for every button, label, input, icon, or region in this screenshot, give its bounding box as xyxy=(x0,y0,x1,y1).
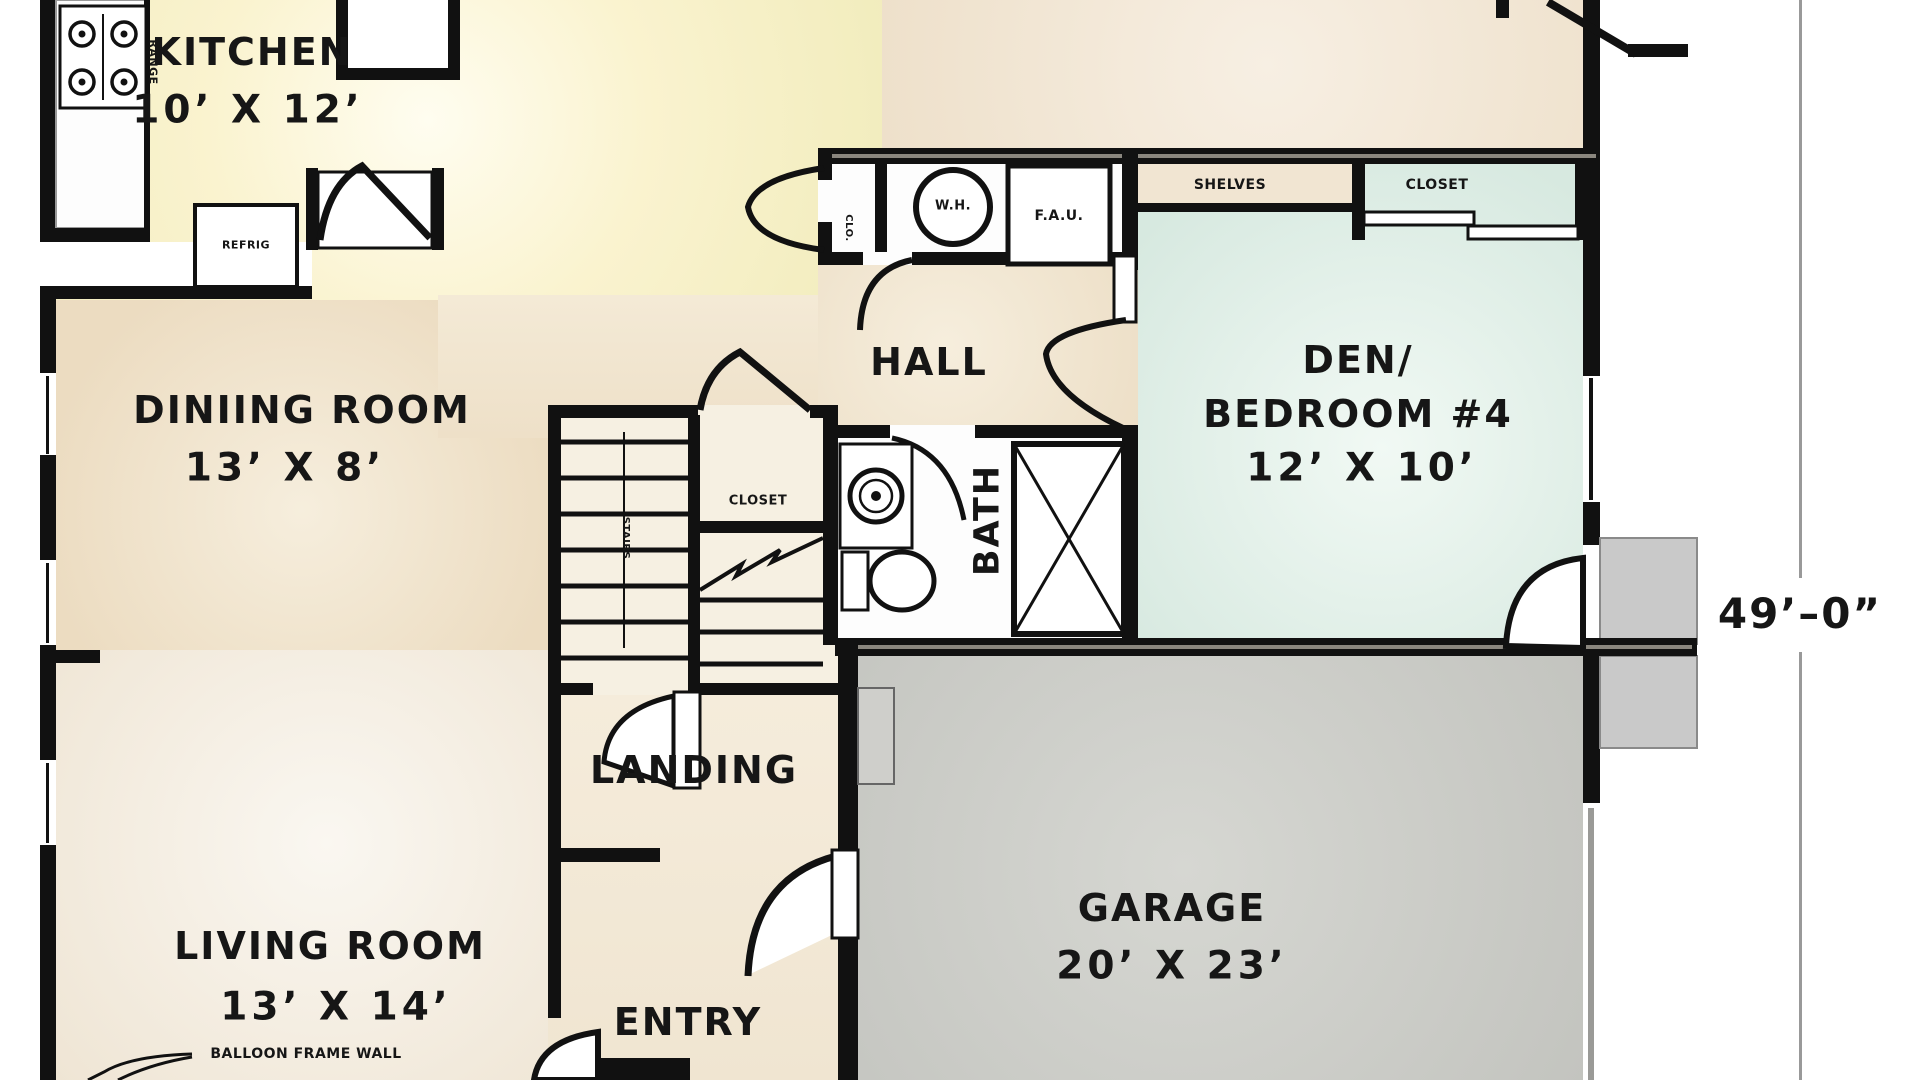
bath-walls xyxy=(823,425,1138,438)
den-closet-label: CLOSET xyxy=(1406,178,1469,192)
refrig-label: REFRIG xyxy=(222,240,270,251)
dimension-line xyxy=(1799,0,1802,1080)
clo-label: CLO. xyxy=(843,214,853,241)
hall-closet-door-swing xyxy=(700,352,810,410)
stairs-label: STAIRS xyxy=(620,517,630,560)
living-name: LIVING ROOM xyxy=(174,927,486,965)
range-label: RANGE xyxy=(148,39,159,84)
plan-linework xyxy=(0,0,1920,1080)
garage-side-door-wedge xyxy=(1506,558,1583,648)
balloon-note-leader xyxy=(88,1054,192,1080)
living-dims: 13’ X 14’ xyxy=(220,988,451,1027)
entry-label: ENTRY xyxy=(614,1003,762,1041)
wh-label: W.H. xyxy=(935,200,971,213)
garage-right-wall-lower xyxy=(1583,795,1600,1080)
hall-utility-door-swing xyxy=(860,260,912,330)
shelves-label: SHELVES xyxy=(1194,178,1266,192)
den-window xyxy=(1583,370,1600,508)
bath-sink xyxy=(850,470,902,522)
closet-bypass-door-1 xyxy=(1364,212,1474,225)
balloon-note: BALLOON FRAME WALL xyxy=(210,1047,401,1061)
stair-break-line xyxy=(700,538,823,590)
garage-name: GARAGE xyxy=(1078,889,1266,927)
garage-dims: 20’ X 23’ xyxy=(1056,947,1287,986)
den-dims: 12’ X 10’ xyxy=(1246,449,1477,488)
left-exterior-wall xyxy=(40,0,56,1080)
shower xyxy=(1014,444,1124,634)
den-door-swing xyxy=(1046,320,1126,428)
floor-plan: KITCHEN 10’ X 12’ RANGE REFRIG DINIING R… xyxy=(0,0,1920,1080)
utility-door-swing xyxy=(748,168,824,250)
toilet xyxy=(842,552,934,610)
left-wall-windows xyxy=(40,368,56,850)
closet-bypass-door-2 xyxy=(1468,226,1578,239)
bath-label: BATH xyxy=(971,464,1006,576)
landing-label: LANDING xyxy=(590,751,798,789)
den-name-2: BEDROOM #4 xyxy=(1203,395,1513,433)
shelves-line xyxy=(1138,203,1352,212)
den-name-1: DEN/ xyxy=(1302,341,1413,379)
dining-dims: 13’ X 8’ xyxy=(185,449,385,488)
stair-treads-lower xyxy=(700,600,823,664)
hall-closet-label: CLOSET xyxy=(729,495,788,508)
kitchen-dims: 10’ X 12’ xyxy=(132,91,363,130)
entry-garage-door-leaf xyxy=(832,850,858,938)
overall-dimension: 49’–0” xyxy=(1714,593,1886,635)
front-door-wedge xyxy=(534,1032,598,1080)
kitchen-name: KITCHEN xyxy=(152,33,353,71)
hall-label: HALL xyxy=(870,343,988,381)
dining-name: DINIING ROOM xyxy=(133,391,471,429)
fau-label: F.A.U. xyxy=(1035,209,1084,223)
front-porch-band xyxy=(596,1058,690,1080)
den-door-leaf xyxy=(1114,256,1136,322)
garage-step xyxy=(858,688,894,784)
kitchen-island-box xyxy=(336,0,460,80)
